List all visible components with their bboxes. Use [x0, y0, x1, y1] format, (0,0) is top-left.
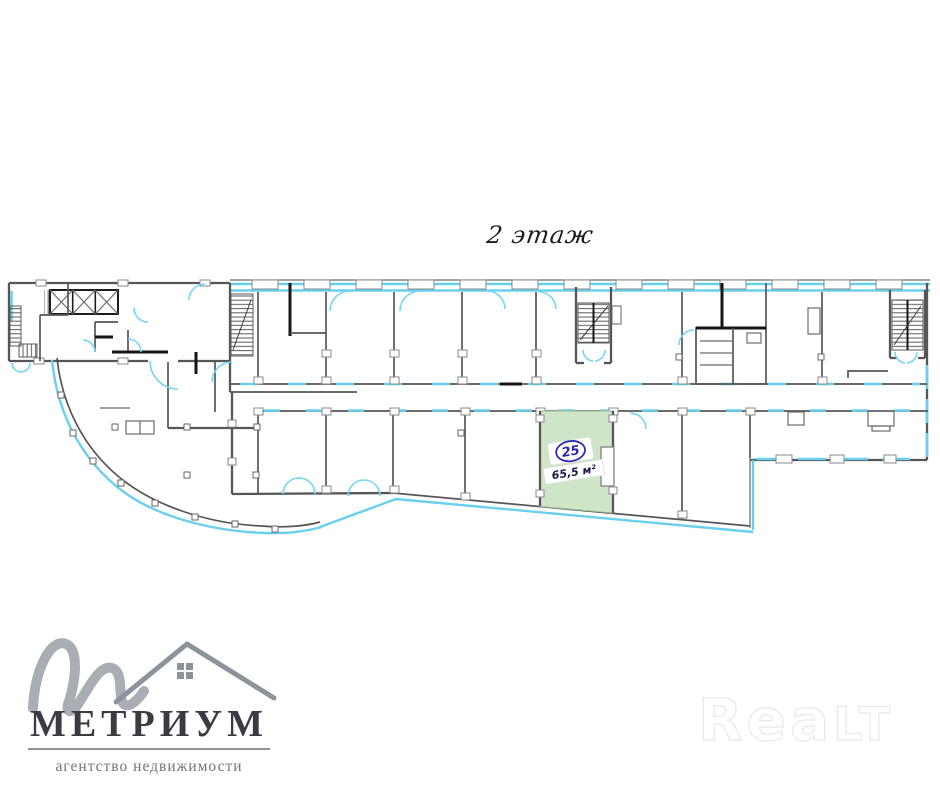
stairwell-right: [890, 290, 925, 358]
floor-plan-page: 25 65,5 м²: [0, 0, 940, 788]
logo-tagline: агентство недвижимости: [55, 758, 242, 775]
unit-number: 25: [561, 443, 581, 461]
logo-house-window-icon: [177, 663, 193, 679]
partition-walls-main: [258, 283, 888, 384]
agency-logo: МЕТРИУМ агентство недвижимости: [6, 622, 306, 788]
furniture-box: [788, 412, 804, 425]
shaft-box: [808, 308, 820, 334]
glass-line-lower: [320, 499, 753, 532]
floor-title: 2 этаж: [485, 221, 596, 249]
elevator-bank: [44, 290, 118, 314]
watermark-text-main: Rea: [698, 686, 833, 754]
pilasters-main: [254, 350, 827, 384]
furniture-box: [868, 411, 894, 426]
realt-watermark: ReaLT: [698, 686, 894, 754]
watermark-text-caps: LT: [833, 697, 894, 751]
furniture-box: [872, 426, 890, 431]
logo-m-swoosh-icon: [33, 643, 144, 711]
service-core: [696, 328, 766, 384]
unit-25[interactable]: 25 65,5 м²: [536, 411, 617, 513]
logo-brand-name: МЕТРИУМ: [30, 703, 268, 745]
left-wing: [9, 280, 258, 428]
